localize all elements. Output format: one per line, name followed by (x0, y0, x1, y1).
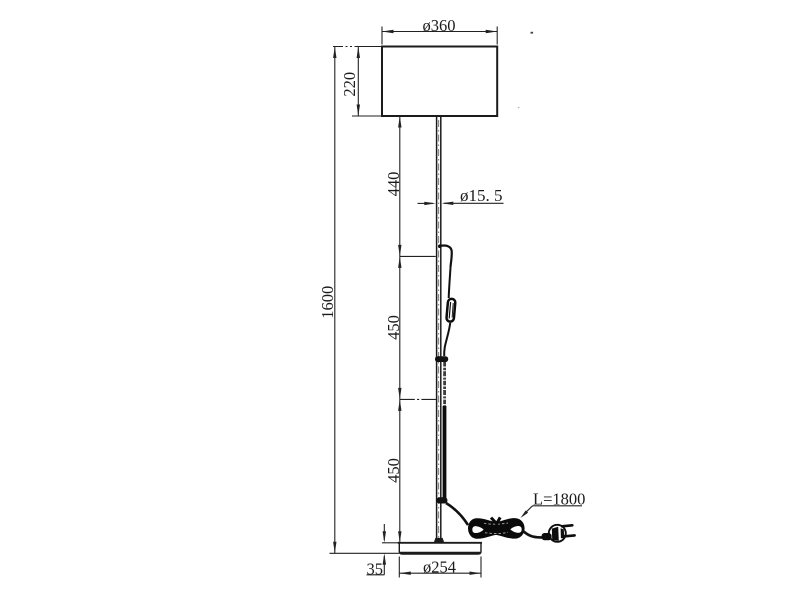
svg-text:ø15. 5: ø15. 5 (460, 186, 503, 205)
svg-text:ø360: ø360 (423, 16, 456, 35)
svg-text:ø254: ø254 (423, 557, 456, 576)
svg-text:450: 450 (384, 315, 403, 340)
svg-text:440: 440 (384, 172, 403, 197)
svg-text:220: 220 (340, 72, 359, 97)
svg-text:1600: 1600 (318, 286, 337, 319)
svg-text:35: 35 (367, 559, 384, 578)
svg-text:450: 450 (384, 458, 403, 483)
